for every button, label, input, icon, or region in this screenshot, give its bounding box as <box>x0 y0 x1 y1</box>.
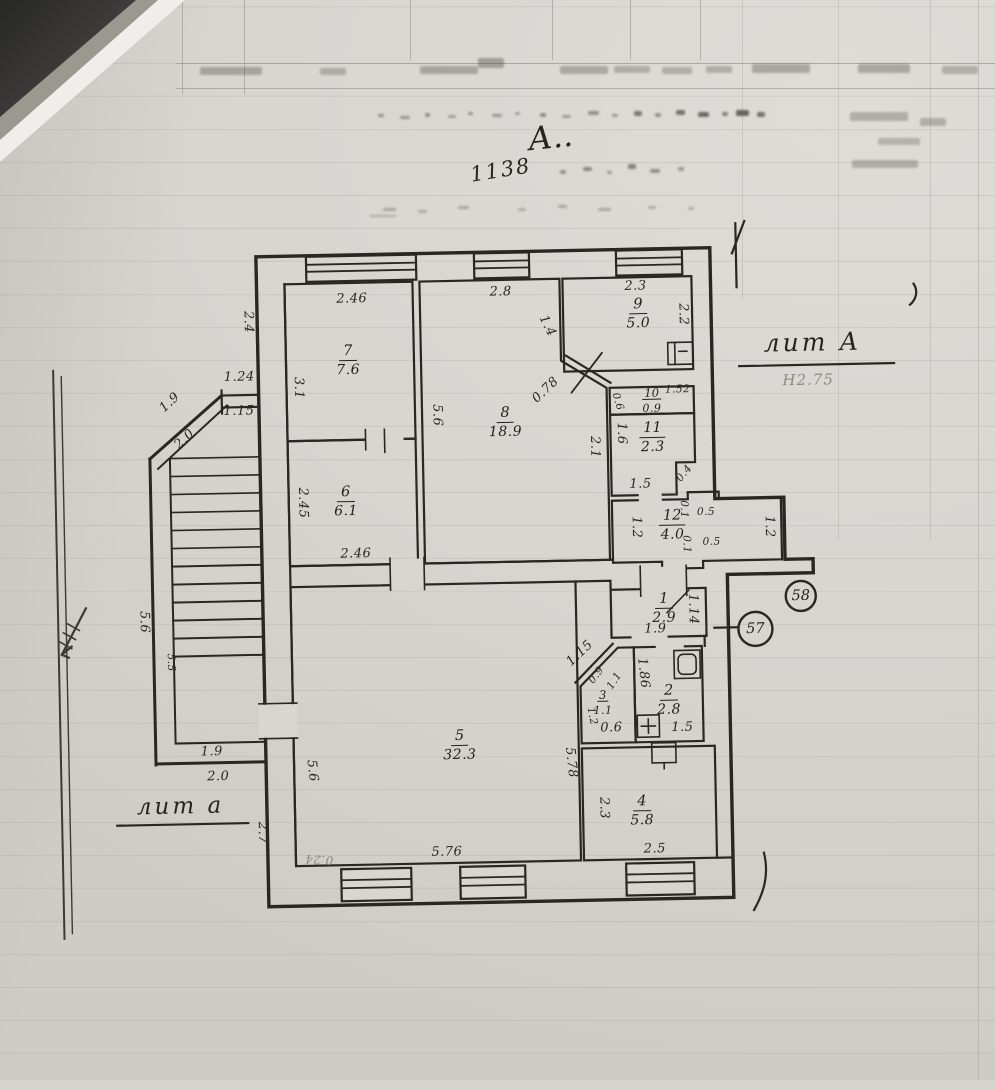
room-area: 5.0 <box>626 316 650 331</box>
building-letter-label: лит А <box>763 327 861 358</box>
dim-0.1: 0.1 <box>678 500 690 518</box>
dim-0.5: 0.5 <box>702 536 720 548</box>
room-2-label: 22.8 <box>657 681 681 717</box>
room-4-label: 45.8 <box>630 792 654 828</box>
door-openings <box>253 423 691 739</box>
room-area: 7.6 <box>336 363 360 378</box>
floor-plan: лит А Н2.75 лит а 58 57 77.666.1818.995.… <box>0 0 995 1090</box>
dim-2.7: 2.7 <box>255 822 270 844</box>
room-number: 1 <box>655 592 673 610</box>
dim-1.24: 1.24 <box>224 369 255 385</box>
room-number: 11 <box>639 421 666 439</box>
room-11-label: 112.3 <box>639 419 666 455</box>
dim-5.76: 5.76 <box>431 844 462 860</box>
parcel-number-57: 57 <box>746 621 765 637</box>
room-6-label: 66.1 <box>334 483 358 519</box>
dim-2.8: 2.8 <box>489 284 511 299</box>
dim-0.5: 0.5 <box>697 506 715 518</box>
dim-1.9: 1.9 <box>201 744 223 759</box>
dim-2.3: 2.3 <box>624 279 646 294</box>
room-area: 0.9 <box>642 402 661 414</box>
dim-1.5: 1.5 <box>629 476 651 491</box>
room-number: 10 <box>642 387 661 400</box>
dim-2.2: 2.2 <box>675 303 690 325</box>
dim-5.6: 5.6 <box>429 404 444 426</box>
room-number: 8 <box>496 406 514 424</box>
room-area: 5.8 <box>630 813 654 828</box>
dim-0.24: 0.24 <box>304 852 333 867</box>
dim-1.2: 1.2 <box>762 515 777 537</box>
room-area: 2.3 <box>639 440 666 455</box>
room-number: 9 <box>629 297 647 315</box>
dim-5.6: 5.6 <box>136 611 151 633</box>
corner-door-cross <box>571 353 603 393</box>
survey-marks <box>706 218 928 911</box>
dim-5.5: 5.5 <box>165 653 177 671</box>
dim-1.86: 1.86 <box>634 657 652 689</box>
stair-treads <box>170 457 264 657</box>
dim-1.2: 1.2 <box>629 516 644 538</box>
staircase-annex <box>149 390 266 765</box>
annex-letter-label: лит а <box>137 793 225 821</box>
margin-lines <box>53 370 92 938</box>
room-9-label: 95.0 <box>626 295 650 331</box>
room-area: 2.8 <box>657 703 681 718</box>
room-5-label: 532.3 <box>443 727 477 764</box>
room-7-label: 77.6 <box>336 342 360 378</box>
room-8-label: 818.9 <box>488 404 522 441</box>
parcel-number-58: 58 <box>791 588 810 604</box>
dim-1.6: 1.6 <box>614 422 629 444</box>
dim-1.5: 1.5 <box>671 720 693 735</box>
dim-2.46: 2.46 <box>336 291 367 307</box>
room-area: 32.3 <box>443 748 476 763</box>
dim-2.45: 2.45 <box>295 487 311 518</box>
dim-1.52: 1.52 <box>665 383 691 396</box>
dim-0.1: 0.1 <box>681 535 693 553</box>
dim-5.78: 5.78 <box>562 746 580 778</box>
dim-1.9: 1.9 <box>644 621 666 636</box>
room-number: 7 <box>339 344 357 362</box>
dim-2.5: 2.5 <box>644 841 666 856</box>
dim-1.14: 1.14 <box>685 594 701 625</box>
dim-2.3: 2.3 <box>596 797 611 819</box>
dim-2.46: 2.46 <box>340 546 371 562</box>
room-number: 2 <box>660 684 678 702</box>
dim-5.6: 5.6 <box>304 759 321 783</box>
room-number: 6 <box>337 485 355 503</box>
room-number: 4 <box>633 794 651 812</box>
dim-0.6: 0.6 <box>600 720 622 735</box>
dim-2.1: 2.1 <box>587 436 602 458</box>
floor-plan-drawing <box>0 0 995 1090</box>
dim-3.1: 3.1 <box>291 377 306 399</box>
dim-1.15: 1.15 <box>223 403 254 419</box>
room-10-label: 100.9 <box>642 384 662 415</box>
dim-2.4: 2.4 <box>240 311 255 333</box>
building-height-note: Н2.75 <box>782 370 834 389</box>
room-area: 6.1 <box>334 504 358 519</box>
windows-bottom <box>341 862 695 901</box>
dim-2.0: 2.0 <box>207 769 229 784</box>
room-number: 3 <box>597 689 609 702</box>
room-area: 18.9 <box>489 425 522 440</box>
room-number: 5 <box>451 729 469 747</box>
